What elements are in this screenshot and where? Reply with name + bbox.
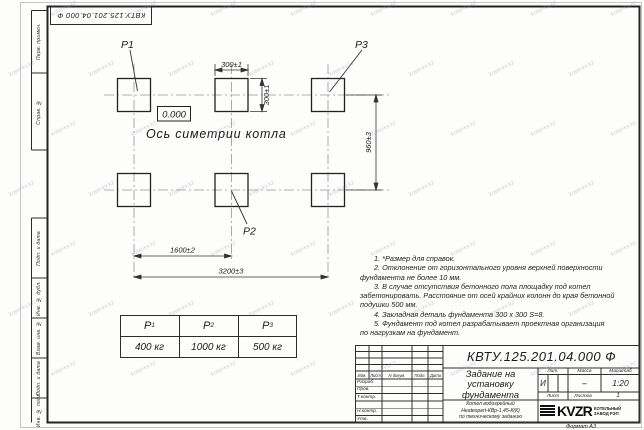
load-table-header-p3: P3 (238, 315, 297, 337)
leader-p3 (330, 50, 363, 92)
title-block-subtitle: Котел водогрейный Heatexpert-КВр-1,45-К(… (443, 401, 538, 421)
kvzr-logo-caption: КОТЕЛЬНЫЙ ЗАВОД РЭП (594, 406, 621, 416)
margin-cell-inv-dubl: Инв. № дубл. (32, 278, 47, 318)
load-subscript: 3 (269, 322, 273, 329)
subtitle-line: Heatexpert-КВр-1,45-К(К) (443, 408, 538, 415)
kvzr-logo-text: KVZR (557, 403, 592, 419)
scale-value: 1:20 (601, 375, 640, 392)
note-line: 1. *Размер для справок. (360, 254, 642, 263)
margin-label: Справ. № (36, 99, 42, 125)
margin-cell-sprav-no: Справ. № (32, 73, 47, 150)
note-line: 4. Закладная деталь фундамента 300 х 300… (360, 310, 642, 319)
margin-label: Подп. и дата (36, 231, 42, 266)
col-data: Дата (428, 371, 443, 379)
load-value-p2: 1000 кг (179, 337, 238, 359)
dim-col-spacing: 1600±2 (170, 246, 196, 255)
load-table-header-p1: P1 (120, 315, 179, 337)
sheet-label: Лист (538, 392, 568, 400)
margin-label: Подп. и дата (36, 361, 42, 396)
drawing-sheet: 0.000 Ось симетрии котла P1 P3 P2 300±1 … (0, 0, 644, 430)
note-line: 2. Отклонение от горизонтального уровня … (360, 263, 642, 272)
margin-label: Инв. № подл. (36, 392, 42, 427)
col-dokum: N докум. (382, 371, 412, 379)
row-tkontr: Т.контр. (357, 394, 382, 401)
point-label-p3: P3 (355, 39, 368, 51)
dim-total-width: 3200±3 (219, 267, 245, 276)
title-line: фундамента (443, 390, 538, 400)
notes-block: 1. *Размер для справок. 2. Отклонение от… (360, 254, 642, 338)
top-designation-text: КВТУ.125.201.04.000 Ф (57, 11, 145, 20)
kvzr-logo: KVZR КОТЕЛЬНЫЙ ЗАВОД РЭП (540, 401, 638, 422)
row-utv: Утв. (357, 416, 382, 423)
subtitle-line: Котел водогрейный (443, 401, 538, 408)
title-line: установку (443, 379, 538, 389)
margin-label: Взам. инв. № (36, 320, 42, 355)
note-line: забетонировать. Расстояние от осей крайн… (360, 291, 642, 300)
title-block-designation: КВТУ.125.201.04.000 Ф (444, 346, 639, 367)
col-izm: Изм. (355, 371, 369, 379)
leader-p2 (232, 191, 248, 224)
lit-value: И (538, 375, 548, 392)
margin-cell-inv-podl: Инв. № подл. (32, 398, 47, 422)
load-symbol: P (262, 320, 269, 332)
margin-cell-vzam-inv: Взам. инв. № (32, 318, 47, 358)
mass-value: – (568, 375, 601, 392)
load-value-p3: 500 кг (238, 337, 297, 359)
row-razrab: Разраб. (357, 379, 382, 386)
axis-caption: Ось симетрии котла (146, 127, 287, 141)
row-empty (357, 401, 382, 408)
title-line: Задание на (443, 369, 538, 379)
margin-label: Перв. примен. (36, 23, 42, 60)
load-symbol: P (144, 320, 151, 332)
logo-caption-line: ЗАВОД РЭП (594, 411, 621, 416)
margin-cell-podp-data-1: Подп. и дата (32, 218, 47, 278)
note-line: 5. Фундамент под котел разрабатывает про… (360, 319, 642, 328)
load-table-header-p2: P2 (179, 315, 238, 337)
dim-pad-width: 300±1 (221, 60, 242, 69)
point-label-p1: P1 (121, 39, 134, 51)
row-nkontr: Н.контр. (357, 408, 382, 415)
top-designation-stamp: КВТУ.125.201.04.000 Ф (50, 7, 152, 25)
col-list: Лист (369, 371, 382, 379)
sheets-value: 1 (600, 392, 636, 400)
col-podp: Подп. (412, 371, 428, 379)
margin-label: Инв. № дубл. (36, 281, 42, 316)
dim-row-spacing: 960±3 (364, 131, 373, 153)
sheets-label: Листов (566, 392, 600, 400)
foundation-pads (118, 79, 345, 207)
title-block-title: Задание на установку фундамента (443, 369, 538, 400)
load-subscript: 1 (151, 322, 155, 329)
dim-pad-height: 300±1 (262, 85, 271, 106)
format-label: Формат А3 (536, 423, 626, 430)
kvzr-logo-icon (540, 405, 555, 417)
subtitle-line: по техническому заданию (443, 414, 538, 421)
load-value-p1: 400 кг (120, 337, 179, 359)
note-line: фундамента не более 10 мм. (360, 273, 642, 282)
point-label-p2: P2 (243, 226, 256, 238)
note-line: по нагрузкам на фундамент. (360, 328, 642, 337)
note-line: подушки 500 мм. (360, 300, 642, 309)
note-line: 3. В случае отсутствия бетонного пола пл… (360, 282, 642, 291)
load-subscript: 2 (210, 322, 214, 329)
row-prov: Пров. (357, 386, 382, 393)
margin-cell-perv-primen: Перв. примен. (32, 10, 47, 73)
elevation-value: 0.000 (162, 110, 186, 121)
